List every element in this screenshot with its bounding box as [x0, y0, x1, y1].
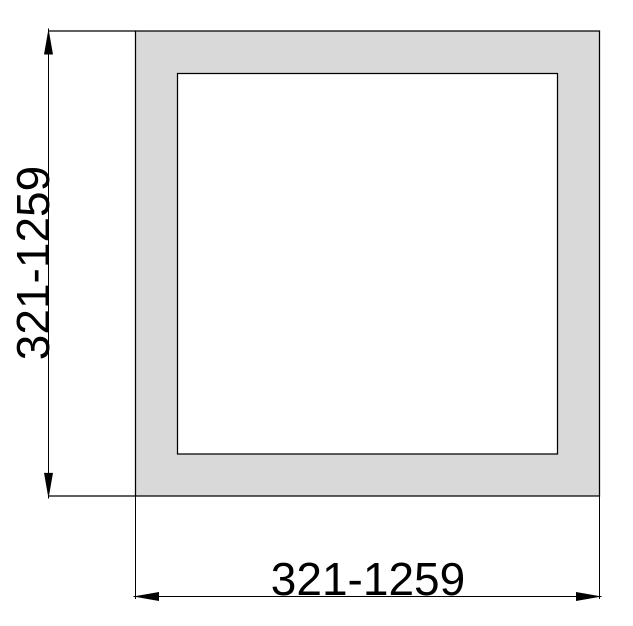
- svg-text:321-1259: 321-1259: [7, 166, 59, 360]
- svg-text:321-1259: 321-1259: [271, 553, 465, 605]
